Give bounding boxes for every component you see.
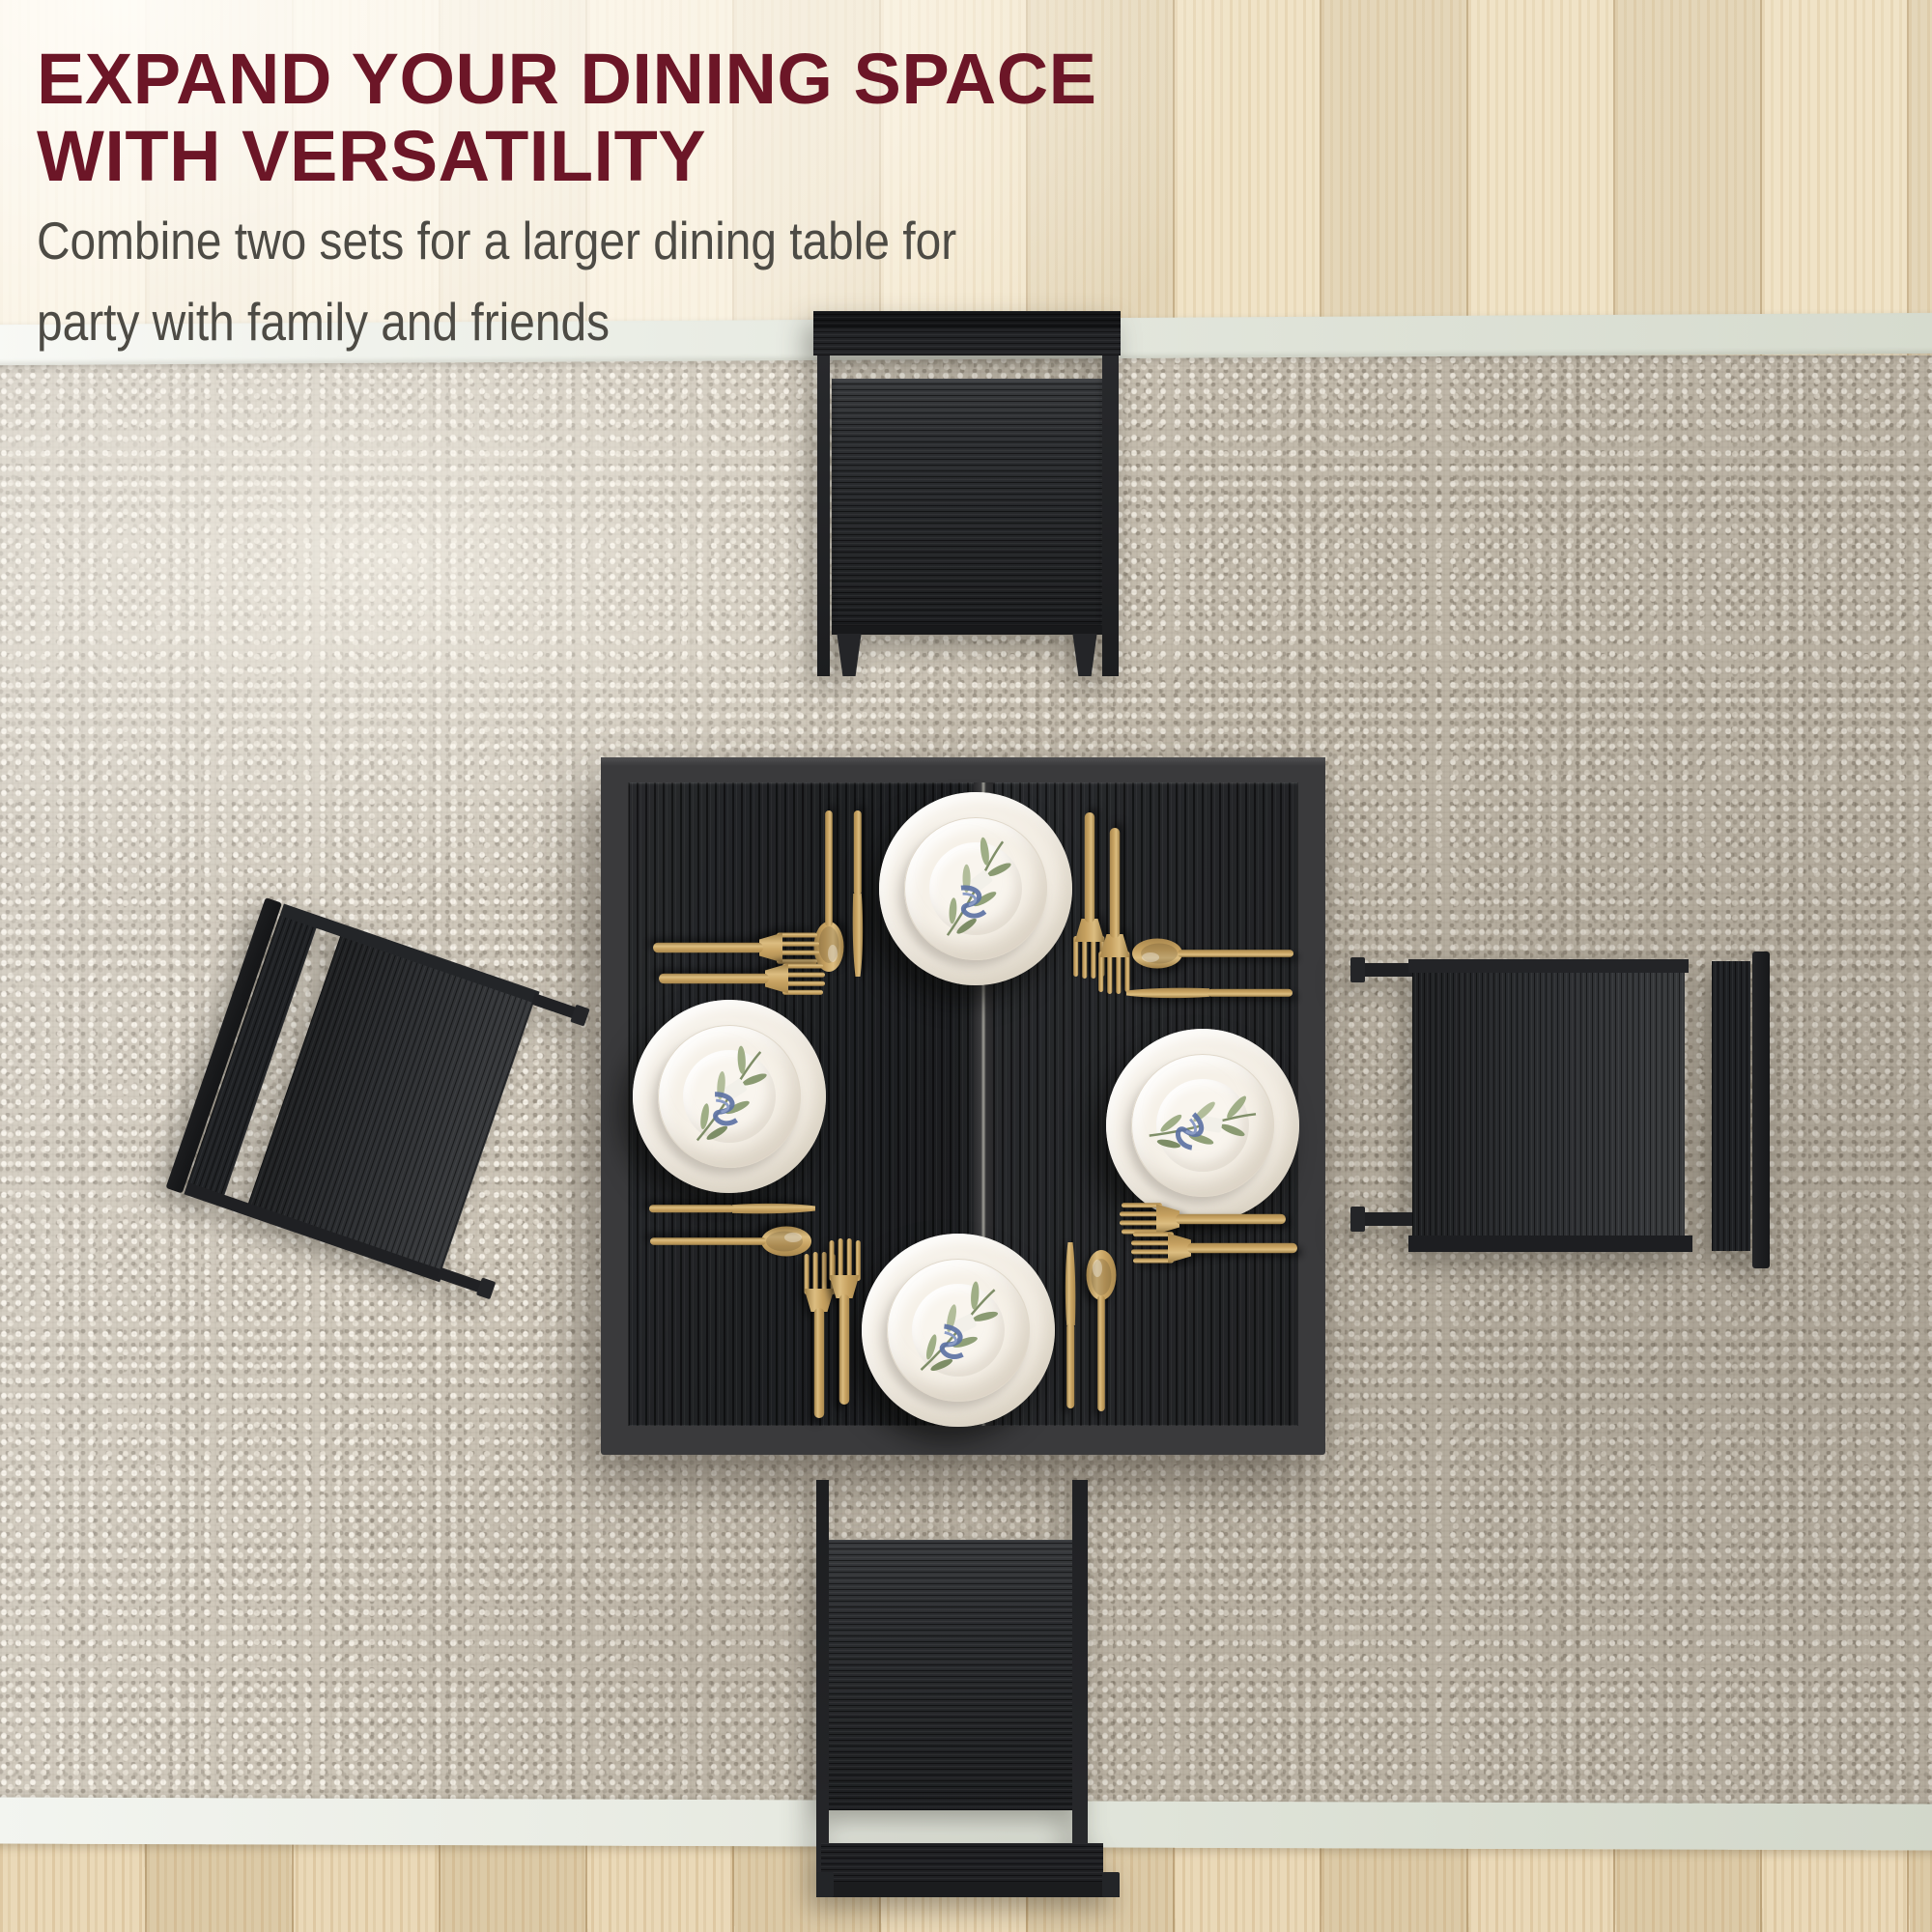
chair-bottom-frame-right — [1072, 1480, 1088, 1897]
plate-west — [633, 1000, 826, 1193]
table-frame-highlight — [601, 757, 1325, 766]
chair-right-foot-bottom — [1350, 1207, 1365, 1232]
knife — [1062, 1240, 1079, 1410]
subheadline-line1: Combine two sets for a larger dining tab… — [37, 201, 1213, 282]
chair-top-foot-right — [1070, 634, 1099, 676]
plate-east — [1106, 1029, 1299, 1222]
chair-top-seat — [832, 379, 1102, 628]
knife — [849, 809, 867, 979]
chair-right-seat — [1412, 973, 1685, 1236]
plate-north — [879, 792, 1072, 985]
plate-south — [862, 1234, 1055, 1427]
garnish-sprig — [1136, 1079, 1269, 1173]
spoon — [648, 1225, 812, 1258]
chair-bottom-seat — [829, 1540, 1072, 1810]
spoon — [1131, 937, 1295, 970]
garnish-sprig — [666, 1027, 792, 1167]
fork — [657, 961, 827, 996]
chair-right-frame-bottom — [1408, 1236, 1692, 1252]
chair-right-foot-top — [1350, 957, 1365, 982]
subheadline: Combine two sets for a larger dining tab… — [37, 201, 1213, 362]
headline-line1: EXPAND YOUR DINING SPACE — [37, 41, 1389, 118]
fork — [827, 1236, 862, 1406]
chair-right-backrest — [1712, 961, 1750, 1251]
chair-right-outer-frame — [1752, 952, 1770, 1268]
chair-top-foot-left — [835, 634, 864, 676]
chair-right-frame-top — [1408, 959, 1689, 973]
spoon — [1085, 1249, 1118, 1413]
product-image: EXPAND YOUR DINING SPACE WITH VERSATILIT… — [0, 0, 1932, 1932]
headline: EXPAND YOUR DINING SPACE WITH VERSATILIT… — [37, 41, 1389, 195]
knife — [647, 1200, 817, 1217]
knife — [1124, 984, 1294, 1002]
garnish-sprig — [892, 1262, 1025, 1399]
chair-bottom-frame-left — [816, 1480, 829, 1897]
chair-bottom-outer-frame — [816, 1882, 1120, 1897]
chair-top-frame-left — [817, 355, 830, 676]
fork — [1097, 826, 1132, 996]
chair-bottom-foot-left — [816, 1872, 834, 1897]
chair-bottom-foot-right — [1102, 1872, 1120, 1897]
chair-top-seat-edge — [832, 626, 1102, 635]
chair-bottom — [816, 1480, 1120, 1897]
headline-line2: WITH VERSATILITY — [37, 118, 1389, 195]
chair-bottom-backrest — [821, 1843, 1103, 1882]
copy-block: EXPAND YOUR DINING SPACE WITH VERSATILIT… — [37, 0, 1389, 386]
garnish-sprig — [915, 818, 1036, 958]
chair-top-frame-right — [1102, 355, 1119, 676]
fork — [651, 930, 821, 965]
subheadline-line2: party with family and friends — [37, 282, 1213, 363]
fork — [1129, 1231, 1299, 1265]
chair-right — [1350, 952, 1770, 1268]
